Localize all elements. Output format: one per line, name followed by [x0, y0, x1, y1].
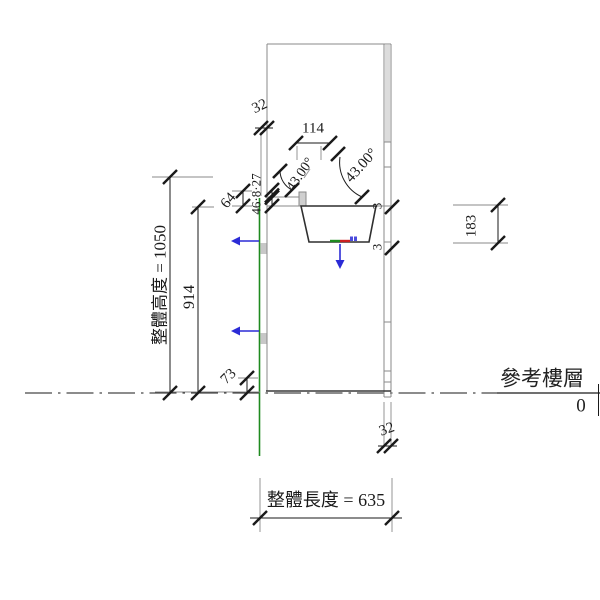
origin-marker[interactable]: [330, 237, 357, 242]
dimension-183[interactable]: [453, 198, 508, 250]
faucet-width-dimension-text[interactable]: 114: [302, 122, 324, 137]
drawing-canvas: 整體高度 = 1050 914 64 73 32 114 46·8·27 43.…: [0, 0, 600, 600]
flip-control-down-arrow-icon[interactable]: [336, 244, 345, 269]
reference-plane-tag[interactable]: [261, 333, 267, 344]
reference-plane-line[interactable]: [260, 198, 267, 456]
flip-control-left-arrow-icon[interactable]: [231, 237, 259, 246]
reference-plane-tag[interactable]: [261, 243, 267, 254]
dimension-114[interactable]: [289, 136, 337, 160]
dimension-3-upper[interactable]: [385, 200, 399, 214]
level-elevation-text[interactable]: 0: [576, 397, 586, 416]
stacked-dimension-text[interactable]: 46·8·27: [250, 173, 263, 214]
sink-basin-profile[interactable]: [301, 206, 376, 242]
drawing-linework: [0, 0, 600, 600]
sink-depth-dimension-text[interactable]: 183: [465, 215, 480, 238]
gap-lower-dimension-text[interactable]: 3: [371, 244, 384, 251]
counter-height-dimension-text[interactable]: 914: [182, 285, 198, 309]
overall-height-dimension-text[interactable]: 整體高度 = 1050: [152, 225, 169, 345]
gap-upper-dimension-text[interactable]: 3: [371, 203, 384, 210]
dimension-3-lower[interactable]: [385, 241, 399, 255]
flip-control-left-arrow-icon[interactable]: [231, 327, 259, 336]
overall-length-dimension-text[interactable]: 整體長度 = 635: [267, 491, 385, 509]
level-name-text[interactable]: 參考樓層: [500, 369, 584, 390]
cabinet-geometry[interactable]: [266, 44, 391, 397]
faucet-profile[interactable]: [299, 192, 306, 206]
dimension-73[interactable]: [238, 371, 258, 400]
